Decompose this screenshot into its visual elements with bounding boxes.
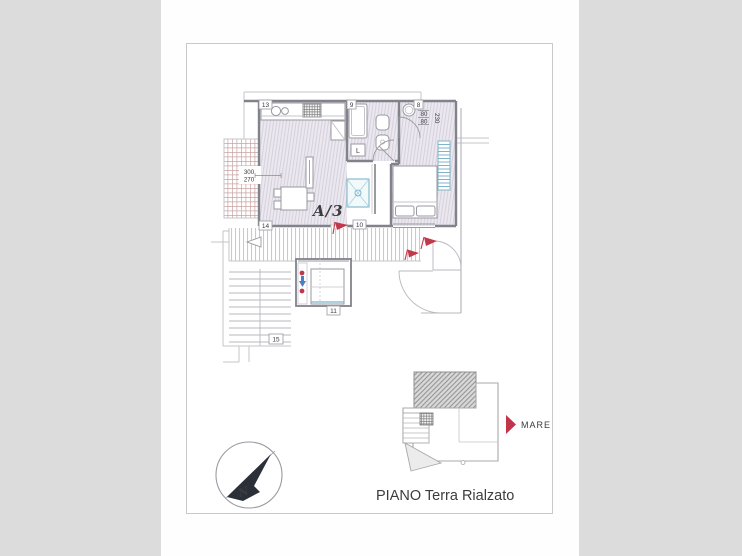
location-keymap: MARE [403, 372, 551, 471]
shower-box [347, 179, 369, 207]
valve-icon [300, 271, 305, 276]
dining-table [281, 187, 307, 210]
svg-text:270: 270 [244, 177, 255, 184]
flag-icon [421, 237, 437, 249]
svg-text:80: 80 [421, 111, 428, 118]
sea-label: MARE [521, 420, 551, 430]
room-label-14: 14 [262, 223, 270, 230]
radiator [438, 141, 450, 190]
room-label-15: 15 [272, 337, 280, 344]
plan-title: PIANO Terra Rialzato [376, 488, 514, 504]
floor-plan-drawing: L [187, 44, 552, 513]
room-label-11: 11 [330, 308, 337, 315]
pillow [417, 206, 436, 216]
room-label-10: 10 [356, 222, 364, 229]
unit-label: A/3 [311, 202, 344, 220]
mare-direction-icon [506, 415, 516, 434]
washing-machine-label: L [356, 148, 360, 155]
technical-room [296, 259, 351, 306]
scanned-plan-canvas: L [0, 0, 742, 556]
toilet-icon [376, 115, 389, 130]
stove-icon [303, 104, 321, 117]
svg-text:300: 300 [244, 169, 255, 176]
valve-icon [300, 289, 305, 294]
svg-text:80: 80 [421, 119, 428, 126]
sink-icon [271, 106, 280, 115]
compass-rose: N [216, 442, 282, 508]
keymap-unit-highlight [414, 372, 476, 408]
room-label-9: 9 [350, 102, 354, 109]
scan-margin-left [0, 0, 161, 556]
room-label-8: 8 [417, 102, 421, 109]
plan-sheet: L [186, 43, 553, 514]
svg-text:230: 230 [433, 113, 440, 124]
keymap-stairwell [420, 413, 433, 425]
pillow [396, 206, 415, 216]
scan-margin-right [579, 0, 742, 556]
room-label-13: 13 [262, 102, 270, 109]
bedroom-fixtures [393, 166, 437, 218]
